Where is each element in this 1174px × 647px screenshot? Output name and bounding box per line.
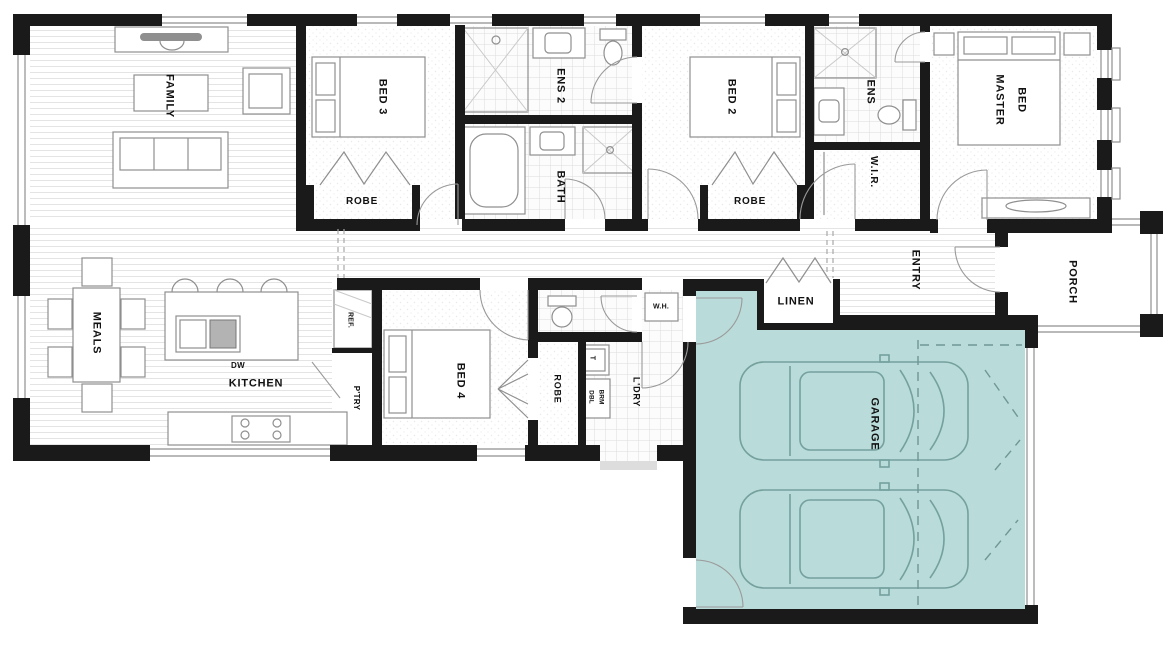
- master-dresser: [982, 198, 1090, 218]
- room-label-ldry: L'DRY: [632, 377, 641, 407]
- label-fridge: REF.: [347, 312, 354, 328]
- tv-unit: [115, 27, 228, 52]
- porch-post: [1140, 314, 1163, 337]
- room-label-robe3: ROBE: [346, 197, 378, 207]
- room-label-bed3: BED 3: [377, 79, 388, 115]
- label-pantry: P'TRY: [352, 386, 360, 410]
- room-label-ens2: ENS 2: [555, 68, 566, 104]
- room-label-bed2: BED 2: [726, 79, 737, 115]
- floor-plan: FAMILY MEALS KITCHEN BED 3 ROBE ENS 2 BA…: [0, 0, 1174, 647]
- label-dbl: DBL: [587, 390, 594, 404]
- room-label-family: FAMILY: [164, 74, 175, 118]
- ens-vanity: [814, 88, 844, 135]
- cooktop-bench: [168, 412, 347, 445]
- bathtub: [463, 127, 525, 214]
- room-label-ens: ENS: [865, 79, 876, 104]
- room-label-garage: GARAGE: [869, 397, 880, 450]
- room-label-master-line2: BED: [1016, 87, 1027, 113]
- label-water-heater: W.H.: [653, 304, 669, 311]
- room-label-kitchen: KITCHEN: [229, 379, 284, 390]
- family-floor: [30, 26, 296, 219]
- bedside-table-left: [934, 33, 954, 55]
- label-dishwasher: DW: [231, 362, 245, 370]
- armchair: [243, 68, 290, 114]
- garage-panel-door: [1027, 348, 1034, 605]
- bedside-table-right: [1064, 33, 1090, 55]
- room-label-bath: BATH: [555, 171, 566, 204]
- window: [1101, 48, 1120, 199]
- laundry-door-landing: [600, 461, 657, 470]
- room-label-master-line1: MASTER: [994, 74, 1005, 125]
- porch-post: [1140, 211, 1163, 234]
- master-bed-bed: [958, 32, 1060, 145]
- room-label-bed4: BED 4: [455, 363, 466, 399]
- bed2-bed: [690, 57, 800, 137]
- room-label-wir: W.I.R.: [868, 156, 878, 188]
- bath-vanity: [530, 127, 575, 155]
- room-label-meals: MEALS: [91, 312, 102, 355]
- room-label-robe2: ROBE: [734, 197, 766, 207]
- room-label-entry: ENTRY: [910, 250, 921, 291]
- bed4-bed: [384, 330, 490, 418]
- bed3-bed: [312, 57, 425, 137]
- room-label-linen: LINEN: [778, 297, 815, 308]
- room-label-robe4: ROBE: [553, 374, 562, 403]
- sofa: [113, 132, 228, 188]
- label-trough: T: [589, 356, 596, 360]
- ens2-vanity: [533, 28, 585, 58]
- label-brm: BRM: [597, 389, 604, 404]
- room-label-porch: PORCH: [1067, 260, 1078, 304]
